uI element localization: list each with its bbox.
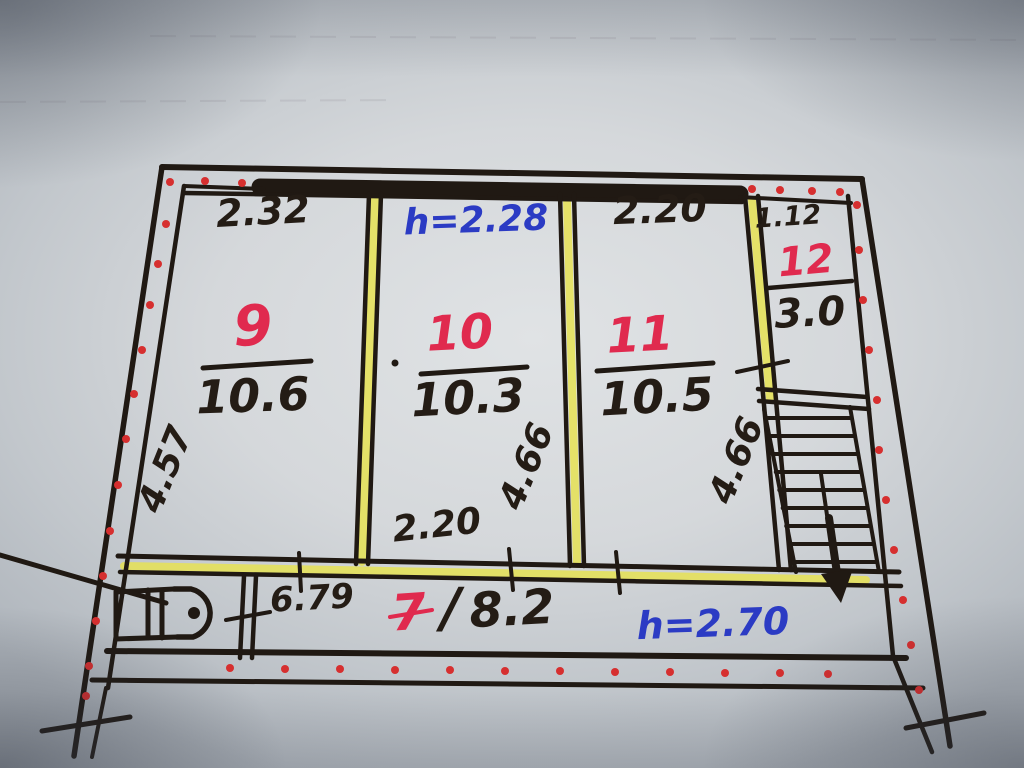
room9-number: 9 (232, 293, 273, 359)
pointer-line (0, 555, 166, 603)
room7-number: 7 (389, 582, 428, 642)
paper-ruled-lines (0, 36, 1024, 102)
dim-corridor-length: 6.79 (269, 576, 355, 620)
dim-room9-width: 2.32 (215, 187, 311, 236)
room9-area: 10.6 (195, 367, 310, 425)
height-corridor: h=2.70 (636, 599, 790, 648)
dim-room11-width: 2.20 (612, 186, 707, 233)
floor-plan-drawing: 2.32 h=2.28 2.20 1.12 4.57 4.66 4.66 2.2… (0, 0, 1024, 768)
floor-plan-photo: 2.32 h=2.28 2.20 1.12 4.57 4.66 4.66 2.2… (0, 0, 1024, 768)
room10-number: 10 (425, 303, 495, 362)
room7-separator: / (435, 577, 465, 640)
room11-area: 10.5 (599, 367, 715, 427)
dim-room12-width: 1.12 (754, 199, 823, 235)
room12-area: 3.0 (773, 288, 846, 338)
dim-room10-depth: 4.66 (491, 418, 563, 517)
height-upper-rooms: h=2.28 (403, 197, 549, 243)
room10-area: 10.3 (410, 368, 526, 428)
room11-number: 11 (605, 305, 675, 364)
entry-door-symbol (116, 589, 210, 639)
room7-area: 8.2 (468, 579, 556, 639)
dim-room11-depth: 4.66 (701, 412, 773, 511)
dim-room10-width-bottom: 2.20 (391, 500, 484, 550)
room12-number: 12 (776, 236, 835, 287)
